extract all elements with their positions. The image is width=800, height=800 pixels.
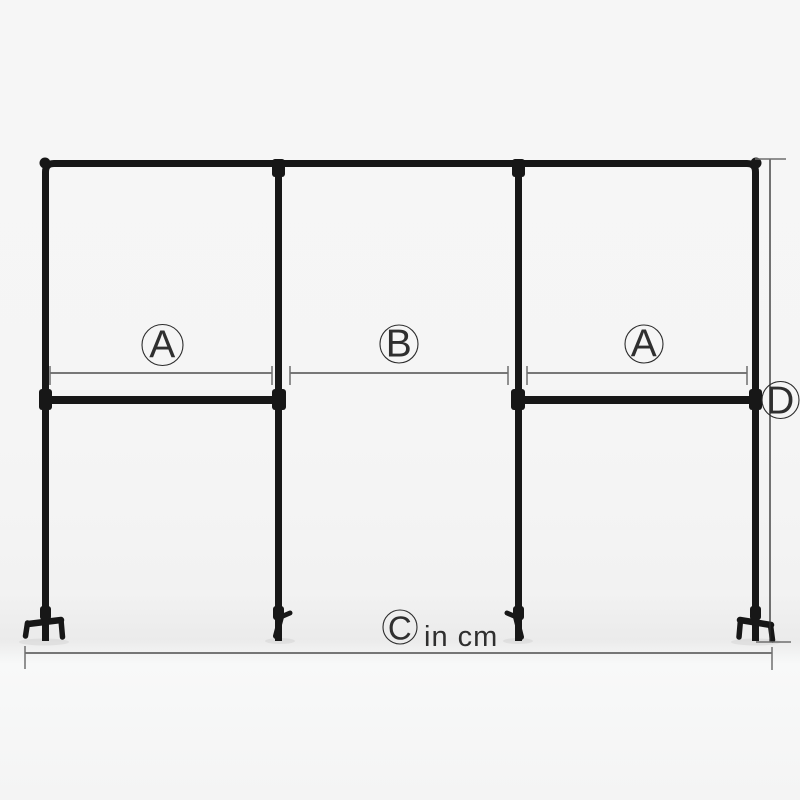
dimension-ticks (25, 159, 791, 670)
tee-mid-post2 (272, 389, 286, 410)
label-D: D (766, 380, 795, 423)
tee-mid-post1 (39, 389, 52, 410)
label-A-right: A (631, 323, 658, 366)
label-A-left: A (149, 324, 176, 367)
dimension-lines (25, 159, 799, 653)
sleeve-foot-post2 (273, 606, 284, 620)
sleeve-foot-post1 (40, 606, 51, 620)
tee-top-post2 (272, 159, 285, 177)
clothes-rack-dimension-diagram: A B A C D in cm (0, 0, 800, 800)
tee-mid-post3 (511, 389, 525, 410)
elbow-top-left (40, 158, 51, 169)
foot-cap-right-a (739, 620, 741, 637)
foot-stub-post3 (507, 613, 514, 616)
sleeve-foot-post4 (750, 606, 761, 620)
foot-cap-left-a (26, 623, 28, 636)
dimension-labels: A B A C D in cm (149, 323, 795, 654)
dimension-diagram-canvas: A B A C D in cm (0, 0, 800, 800)
foot-bar-left (28, 620, 61, 624)
label-B: B (386, 323, 413, 366)
pipe-structure (26, 164, 773, 642)
tee-mid-post4 (749, 389, 762, 410)
foot-bar-right (740, 620, 771, 625)
unit-note: in cm (424, 621, 498, 653)
label-C: C (388, 610, 412, 647)
tee-top-post3 (512, 159, 525, 177)
foot-cap-right-b (771, 625, 773, 640)
pipe-fittings (39, 158, 762, 621)
sleeve-foot-post3 (513, 606, 524, 620)
foot-cap-left-b (61, 620, 63, 637)
foot-stub-post2 (283, 613, 290, 616)
